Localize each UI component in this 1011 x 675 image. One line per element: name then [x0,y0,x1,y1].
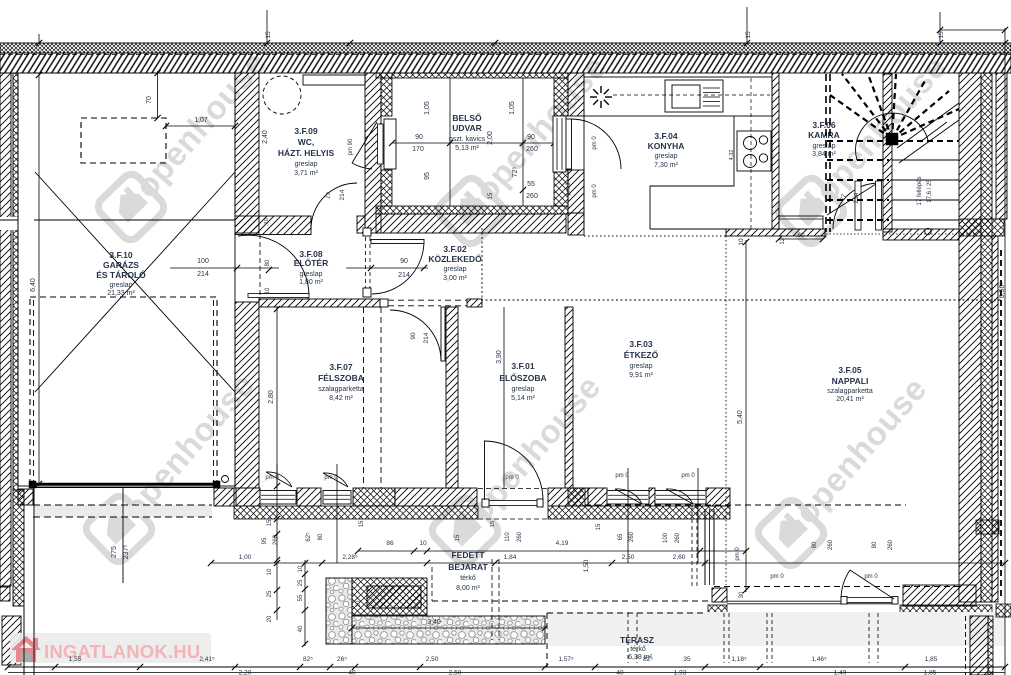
svg-text:62⁵: 62⁵ [305,532,312,542]
svg-text:3,90: 3,90 [496,350,503,364]
svg-text:térkő: térkő [460,575,476,582]
svg-text:30: 30 [739,591,745,598]
svg-text:72⁵: 72⁵ [512,167,519,178]
svg-text:1,07: 1,07 [194,117,208,124]
svg-text:7,30 m²: 7,30 m² [654,162,678,169]
svg-text:275: 275 [111,546,118,558]
svg-text:1,55: 1,55 [69,656,82,663]
svg-text:20: 20 [356,600,362,607]
svg-text:237⁵: 237⁵ [123,545,130,560]
svg-text:1,05: 1,05 [509,101,516,115]
svg-text:260: 260 [828,539,834,550]
svg-text:1,46⁵: 1,46⁵ [811,656,827,663]
svg-text:BEJÁRAT: BEJÁRAT [448,562,488,572]
svg-text:15: 15 [596,523,602,530]
svg-text:3.F.09: 3.F.09 [294,126,317,136]
svg-text:pm 0: pm 0 [505,475,519,481]
svg-text:3,71 m²: 3,71 m² [294,170,318,177]
svg-text:100: 100 [197,258,209,265]
svg-text:260: 260 [675,532,681,543]
svg-text:1,80 m²: 1,80 m² [299,279,323,286]
svg-text:110: 110 [505,532,511,542]
svg-text:HÁZT. HELYIS: HÁZT. HELYIS [278,148,335,158]
svg-text:1,50: 1,50 [583,559,590,572]
svg-text:KAMRA: KAMRA [808,130,840,140]
svg-text:UDVAR: UDVAR [452,123,482,133]
svg-text:ELŐSZOBA: ELŐSZOBA [499,372,546,383]
svg-text:greslap: greslap [295,161,318,168]
svg-text:10: 10 [419,540,427,547]
svg-text:pm 0: pm 0 [615,473,629,479]
svg-text:1,57⁵: 1,57⁵ [558,656,574,663]
svg-text:1,18⁵: 1,18⁵ [731,656,747,663]
svg-text:2,50: 2,50 [426,656,439,663]
svg-text:95: 95 [262,537,268,544]
svg-text:1,05: 1,05 [424,101,431,115]
svg-text:10: 10 [267,568,273,575]
svg-text:70: 70 [146,96,153,104]
svg-text:15: 15 [359,520,365,527]
svg-text:20,41 m²: 20,41 m² [836,396,864,403]
svg-text:3.F.03: 3.F.03 [629,339,652,349]
svg-text:20: 20 [267,615,273,622]
svg-text:NAPPALI: NAPPALI [832,376,869,386]
svg-text:1,84: 1,84 [504,554,517,561]
svg-text:82⁵: 82⁵ [643,656,653,663]
svg-text:260: 260 [526,193,538,200]
svg-text:3,00 m²: 3,00 m² [443,275,467,282]
svg-text:KÖZLEKEDŐ: KÖZLEKEDŐ [428,253,482,264]
svg-text:15: 15 [745,31,752,39]
svg-text:214: 214 [339,189,346,200]
svg-text:BELSŐ: BELSŐ [452,112,482,123]
svg-text:GARÁZS: GARÁZS [103,260,139,270]
svg-text:82⁵: 82⁵ [303,656,313,663]
svg-text:260: 260 [629,531,635,542]
svg-text:10: 10 [298,565,304,572]
svg-text:3.F.01: 3.F.01 [511,361,534,371]
svg-text:INGATLANOK.HU: INGATLANOK.HU [44,641,200,662]
svg-text:2,60: 2,60 [673,554,686,561]
svg-text:pm 0: pm 0 [592,136,598,150]
svg-text:5,40: 5,40 [737,410,744,424]
svg-text:260: 260 [273,534,279,545]
svg-text:1,00: 1,00 [239,554,252,561]
svg-text:3.F.02: 3.F.02 [443,244,466,254]
svg-text:12⁵: 12⁵ [779,235,786,245]
svg-text:greslap: greslap [630,363,653,370]
svg-text:KONYHA: KONYHA [648,141,685,151]
svg-text:260: 260 [517,531,523,542]
svg-text:15: 15 [267,519,273,526]
svg-text:WC,: WC, [298,137,315,147]
svg-text:4,32: 4,32 [729,150,735,161]
svg-text:15: 15 [490,521,496,527]
svg-text:greslap: greslap [655,153,678,160]
svg-text:greslap: greslap [444,266,467,273]
svg-text:26⁵: 26⁵ [337,656,347,663]
svg-text:3,40: 3,40 [427,619,441,626]
svg-text:,10: ,10 [264,218,270,226]
svg-text:greslap: greslap [813,143,836,150]
svg-text:17 fellépés: 17 fellépés [917,176,923,205]
svg-text:3.F.10: 3.F.10 [109,250,132,260]
svg-text:greslap: greslap [512,386,535,393]
svg-text:2,41⁵: 2,41⁵ [199,656,215,663]
svg-text:5,14 m²: 5,14 m² [511,395,535,402]
svg-text:szalagparketta: szalagparketta [827,388,873,395]
svg-text:15: 15 [265,31,272,39]
svg-text:3,84 m²: 3,84 m² [812,151,836,158]
svg-text:pm 0: pm 0 [681,473,695,479]
svg-text:260: 260 [888,539,894,550]
svg-text:2,28⁵: 2,28⁵ [342,554,358,561]
svg-text:térkő: térkő [630,646,646,653]
svg-text:pm 0: pm 0 [735,547,741,561]
svg-text:pm 0: pm 0 [864,574,878,580]
svg-text:10: 10 [265,287,271,294]
svg-text:2,00: 2,00 [487,131,494,145]
svg-text:17,6 / 25: 17,6 / 25 [927,179,933,203]
svg-text:9,91 m²: 9,91 m² [629,372,653,379]
svg-text:8,42 m²: 8,42 m² [329,395,353,402]
svg-text:szalagparketta: szalagparketta [318,386,364,393]
svg-text:65: 65 [618,533,624,540]
svg-text:55: 55 [298,594,304,601]
svg-text:3.F.05: 3.F.05 [838,365,861,375]
svg-text:90: 90 [410,332,417,340]
svg-text:5,13 m²: 5,13 m² [455,145,479,152]
svg-text:214: 214 [853,192,860,203]
svg-text:8,00 m²: 8,00 m² [456,585,480,592]
svg-text:pm 0: pm 0 [324,475,338,481]
svg-text:214: 214 [423,332,430,343]
svg-text:3.F.06: 3.F.06 [812,120,835,130]
svg-text:ÉS TÁROLÓ: ÉS TÁROLÓ [96,269,146,280]
svg-text:90: 90 [415,134,423,141]
svg-text:pm 0: pm 0 [566,182,572,196]
svg-text:80: 80 [318,533,324,540]
svg-text:35: 35 [683,656,691,663]
svg-text:3.F.07: 3.F.07 [329,362,352,372]
svg-text:2,50: 2,50 [622,554,635,561]
svg-text:80: 80 [812,541,818,548]
svg-text:214: 214 [197,271,209,278]
svg-text:FÉLSZOBA: FÉLSZOBA [318,373,364,383]
svg-text:170: 170 [412,146,424,153]
svg-text:pm 0: pm 0 [592,184,598,198]
svg-text:2,80: 2,80 [268,390,275,404]
svg-text:2,40: 2,40 [262,130,269,144]
svg-text:90: 90 [527,134,535,141]
svg-text:15: 15 [488,192,494,199]
svg-text:80: 80 [872,541,878,548]
svg-text:oszt. kavics: oszt. kavics [449,136,486,143]
svg-text:3.F.04: 3.F.04 [654,131,677,141]
svg-text:60: 60 [797,232,805,239]
svg-text:6,40: 6,40 [30,278,37,292]
svg-text:greslap: greslap [110,282,133,289]
svg-text:1,85: 1,85 [925,656,938,663]
svg-text:pm 0: pm 0 [265,475,279,481]
svg-text:15: 15 [455,534,461,541]
svg-text:greslap: greslap [300,271,323,278]
svg-text:95: 95 [424,172,431,180]
svg-text:21,33 m²: 21,33 m² [107,290,135,297]
svg-text:pm 90: pm 90 [348,138,354,155]
svg-text:pm 0: pm 0 [770,574,784,580]
svg-text:214: 214 [398,272,410,279]
svg-text:55: 55 [527,181,535,188]
svg-text:100: 100 [663,532,669,543]
svg-text:80: 80 [265,259,271,266]
svg-text:86: 86 [386,540,394,547]
svg-text:90: 90 [400,258,408,265]
svg-text:25: 25 [298,579,304,586]
svg-text:ÉTKEZŐ: ÉTKEZŐ [624,349,659,360]
svg-text:FEDETT: FEDETT [451,550,485,560]
svg-text:40: 40 [298,625,304,632]
svg-text:25: 25 [267,590,273,597]
svg-text:15: 15 [938,31,945,39]
svg-text:4,19: 4,19 [556,540,569,547]
svg-text:260: 260 [526,146,538,153]
